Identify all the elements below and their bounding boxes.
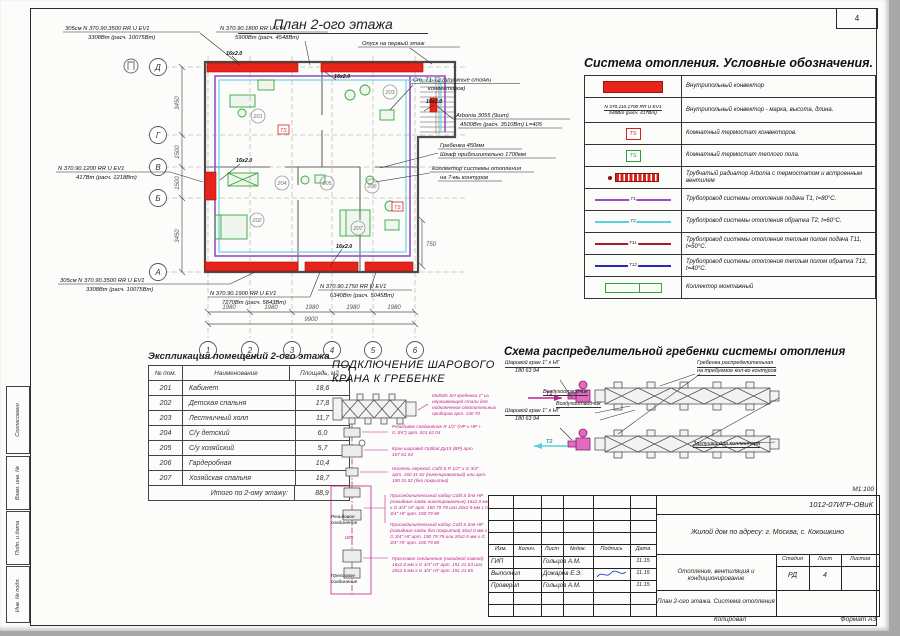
table-row: 204С/у детский6,0 [149, 426, 349, 441]
legend-desc: Трубопровод системы отопления обратка Т2… [682, 211, 875, 232]
legend-row: Т11 Трубопровод системы отопления теплым… [585, 233, 875, 255]
valve-note-7: Прессовое соединение (накидной гайкой) 1… [392, 556, 487, 574]
legend-desc: Внутрипольный конвектор - марка, высота,… [682, 98, 875, 122]
col-podpis: Подпись [593, 546, 630, 552]
cell-num: 203 [149, 411, 183, 425]
air-vent-bottom-text: Воздухоотводчик [556, 401, 601, 408]
col-name: Наименование [183, 366, 290, 380]
floor-plan-drawing: TS TS 201 203 204 205 206 202 207 Д Г В … [40, 20, 580, 362]
threaded-connection-label: Резьбовое соединение [331, 515, 373, 527]
margin-label-vzam: Взам. инв. № [15, 466, 21, 500]
valve-note-5: Присоединительный набор Cofit S для НР (… [390, 493, 490, 517]
copied-label: Копировал [690, 616, 770, 623]
scanned-drawing-sheet: { "page": {"sheet_number":"4","scale_not… [0, 0, 900, 636]
return-line-symbol: Т2 [595, 217, 671, 227]
sheet-number: 4 [855, 14, 859, 23]
ball-valve-top-line2: 180 63 94 [505, 368, 560, 375]
pipe-tag-2: 16х2.0 [334, 74, 350, 80]
pipe-tag-1: 16х2.0 [226, 51, 242, 57]
room-tag-206: 206 [366, 184, 377, 190]
cell-name: Кабинет [183, 381, 296, 395]
name-gip: Гольцов А.М. [543, 558, 581, 565]
room-schedule-title: Экспликация помещений 2-ого этажа [148, 351, 350, 362]
room-schedule-table: № пом. Наименование Площадь, м2 201Кабин… [148, 365, 350, 501]
ann-risers-1: Ст. Т1-Т2 (опускные стояки [413, 78, 492, 84]
cell-name: Детская спальня [183, 396, 296, 410]
ball-valve-bottom-line1: Шаровой кран 1" х НГ [505, 408, 560, 416]
stage-value: РД [776, 572, 809, 579]
ball-valve-top-line1: Шаровой кран 1" х НГ [505, 360, 560, 368]
thermostat-red-symbol: TS [626, 128, 641, 140]
convector-mark-line2: 548Вт (расч. 417Вт) [609, 111, 657, 116]
col-number: № пом. [149, 366, 183, 380]
manifold-label: Гребенка распределительная на требуемое … [697, 360, 776, 376]
valve-section-title: ПОДКЛЮЧЕНИЕ ШАРОВОГО КРАНА К ГРЕБЕНКЕ [332, 359, 495, 387]
dim-bot-3: 1980 [305, 305, 319, 311]
room-tag-202: 202 [251, 218, 262, 224]
table-row: 203Лестничный холл11,7 [149, 411, 349, 426]
table-row: 202Детская спальня17,8 [149, 396, 349, 411]
ann-conv-top-left-1: 305см N 370.90.3500 RR U EV1 [65, 26, 150, 32]
ann-collector-2: на 7-мь контуров [440, 175, 488, 181]
role-author: Выполнил [491, 570, 520, 577]
sheet-label: Лист [809, 556, 841, 562]
legend-row: Внутрипольный конвектор [585, 76, 875, 98]
col-list: Лист [541, 546, 563, 552]
date-author: 11.15 [630, 570, 656, 576]
legend-row: TS Комнатный термостат теплого пола. [585, 145, 875, 167]
legend-desc: Трубопровод системы отопления теплым пол… [682, 233, 875, 254]
line-tag: Т1 [629, 196, 636, 201]
signature [595, 569, 629, 580]
plug-label-text: Заглушка для коллектора [693, 441, 760, 448]
axis-6: 6 [413, 346, 418, 355]
legend-row: Коллектор монтажный [585, 277, 875, 299]
ts-badge-2: TS [394, 205, 401, 211]
supply-line-symbol: Т1 [595, 195, 671, 205]
cell-num: 205 [149, 441, 183, 455]
valve-note-3: Кран шаровой Optibal Ду15 (ВР) арт. 107 … [392, 446, 482, 458]
press-connection-label: Прессовое соединение [331, 574, 373, 586]
manifold-label-line2: на требуемое кол-во контуров [697, 368, 776, 376]
axis-5: 5 [371, 346, 376, 355]
ann-arbonia-1: Arbonia 3055 (9шт) [455, 113, 509, 119]
dim-left-1: 3450 [175, 96, 181, 110]
ts-badge-1: TS [280, 128, 287, 134]
plan-annotations: 305см N 370.90.3500 RR U EV1 3308Вт (рас… [58, 26, 543, 306]
floor-return-line-symbol: Т12 [595, 261, 671, 271]
valve-note-6: Присоединительный набор Cofit S для НР (… [390, 522, 490, 546]
legend-desc: Внутрипольный конвектор [682, 76, 875, 97]
or-label: или [345, 535, 353, 542]
convector-mark-symbol: N 370.110.1700 RR U EV1 548Вт (расч. 417… [585, 98, 682, 122]
table-row: 205С/у хозяйский5,7 [149, 441, 349, 456]
valve-note-2: Резьбовое соединение R 1/2" (НР х НР + G… [392, 424, 482, 436]
table-total-row: Итого по 2-ому этажу: 88,9 [149, 486, 349, 501]
valve-note-4: Ниппель переход. Cofit S R 1/2" х G 3/4"… [392, 466, 487, 484]
table-header-row: № пом. Наименование Площадь, м2 [149, 366, 349, 381]
axis-a: А [154, 268, 160, 277]
ann-conv-bottom-center-1: N 370.90.1900 RR U EV1 [210, 291, 276, 297]
scale-note: М1:100 [818, 486, 874, 493]
collector-symbol [605, 283, 662, 293]
ball-valve-bottom-label: Шаровой кран 1" х НГ 180 63 94 [505, 408, 560, 423]
legend-desc: Трубопровод системы отопления подача Т1,… [682, 189, 875, 210]
dim-left-4: 3450 [175, 229, 181, 243]
legend-row: Т2 Трубопровод системы отопления обратка… [585, 211, 875, 233]
total-label: Итого по 2-ому этажу: [149, 486, 295, 500]
col-kolich: Колич. [513, 546, 541, 552]
row-axis-bubbles: Д Г В Б А [150, 59, 167, 281]
cell-num: 202 [149, 396, 183, 410]
ann-conv-bottom-right-2: 6340Вт (расч. 5045Вт) [330, 293, 394, 299]
margin-label-podp: Подп. и дата [15, 521, 21, 555]
legend-desc: Трубопровод системы отопления теплым пол… [682, 255, 875, 276]
ann-conv-bottom-center-2: 7270Вт (расч. 5843Вт) [222, 300, 286, 306]
room-tags: 201 203 204 205 206 202 207 [250, 85, 397, 235]
col-ndok: №док. [563, 546, 593, 552]
cell-num: 201 [149, 381, 183, 395]
stage-label: Стадия [776, 556, 809, 562]
date-gip: 11.15 [630, 558, 656, 564]
legend: Система отопления. Условные обозначения.… [584, 56, 876, 299]
t2-tag: Т2 [546, 439, 552, 445]
room-tag-201: 201 [252, 114, 262, 120]
room-schedule: Экспликация помещений 2-ого этажа № пом.… [148, 351, 350, 501]
legend-row: N 370.110.1700 RR U EV1 548Вт (расч. 417… [585, 98, 875, 123]
cell-name: С/у хозяйский [183, 441, 296, 455]
legend-row: Т12 Трубопровод системы отопления теплым… [585, 255, 875, 277]
air-vent-top-label: Воздухоотводчик [543, 389, 588, 396]
scheme-title: Схема распределительной гребенки системы… [504, 346, 845, 358]
dim-total: 9900 [304, 317, 318, 323]
section-name: Отопление, вентиляция и кондиционировани… [658, 568, 774, 582]
table-row: 207Хозяйская спальня18,7 [149, 471, 349, 486]
ann-comb-2: Шкаф приблизительно 1700мм [440, 152, 526, 158]
dim-bot-5: 1980 [387, 305, 401, 311]
axis-b: Б [155, 194, 160, 203]
margin-label-inv: Инв. № подл. [15, 577, 21, 611]
legend-desc: Комнатный термостат конвекторов. [682, 123, 875, 144]
walls [205, 62, 455, 272]
role-gip: ГИП [491, 558, 503, 565]
table-row: 206Гардеробная10,4 [149, 456, 349, 471]
cell-name: Гардеробная [183, 456, 296, 470]
pipe-tag-5: 16х2.0 [336, 244, 352, 250]
line-tag: Т11 [628, 240, 638, 245]
dim-right: 750 [426, 242, 437, 248]
axis-v: В [155, 163, 161, 172]
legend-row: TS Комнатный термостат конвекторов. [585, 123, 875, 145]
cell-num: 204 [149, 426, 183, 440]
ann-collector-1: Коллектор системы отопления [432, 166, 521, 172]
fitting-chain [342, 428, 365, 578]
axis-g: Г [156, 131, 161, 140]
ts-text: TS [629, 131, 636, 137]
valve-title-line2: КРАНА К ГРЕБЕНКЕ [332, 373, 495, 387]
pipe-tag-4: 16х2.0 [426, 99, 442, 105]
dim-left-3: 1500 [175, 176, 181, 190]
title-block: Изм. Колич. Лист №док. Подпись Дата ГИП … [488, 495, 880, 617]
ann-conv-bottom-left-2: 3308Вт (расч. 10075Вт) [86, 287, 153, 293]
legend-desc: Комнатный термостат теплого пола. [682, 145, 875, 166]
ann-conv-top-center-2: 5900Вт (расч. 4548Вт) [235, 35, 299, 41]
room-tag-203: 203 [384, 90, 395, 96]
ann-conv-left-2: 417Вт (расч. 1218Вт) [76, 175, 137, 181]
drawing-sheet-title: План 2-ого этажа. Система отопления [656, 598, 776, 605]
ball-valve-bottom-line2: 180 63 94 [505, 416, 560, 423]
format-label: Формат А3 [818, 616, 876, 623]
cell-name: Лестничный холл [183, 411, 296, 425]
margin-box-vzam: Взам. инв. № [6, 456, 30, 510]
margin-label-agreed: Согласовано [15, 403, 21, 437]
legend-row: Трубчатый радиатор Arbonia с термостатом… [585, 167, 875, 189]
role-checker: Проверил [491, 582, 519, 589]
margin-box-agreed: Согласовано [6, 386, 30, 454]
cell-name: С/у детский [183, 426, 296, 440]
grid-lines [148, 56, 468, 338]
valve-title-line1: ПОДКЛЮЧЕНИЕ ШАРОВОГО [332, 359, 495, 373]
margin-box-podp: Подп. и дата [6, 511, 30, 565]
valve-note-1: Multidis SH гребенка 1" из нержавеющей с… [432, 393, 504, 417]
room-tag-207: 207 [352, 226, 363, 232]
pipe-tag-3: 16х2.0 [236, 158, 252, 164]
sheet-value: 4 [809, 572, 841, 579]
date-checker: 11.15 [630, 582, 656, 588]
room-tag-204: 204 [276, 181, 286, 187]
dim-bot-4: 1980 [346, 305, 360, 311]
manifold-label-line1: Гребенка распределительная [697, 360, 776, 368]
line-tag: Т12 [628, 262, 638, 267]
supply-manifold [595, 382, 779, 410]
air-vent-bottom-label: Воздухоотводчик [556, 401, 601, 408]
thermostat-green-symbol: TS [626, 150, 641, 162]
ts-text: TS [629, 153, 636, 159]
legend-desc: Трубчатый радиатор Arbonia с термостатом… [682, 167, 875, 188]
ann-conv-bottom-right-1: N 370.90.1750 RR U EV1 [320, 284, 386, 290]
red-bar-symbol [603, 81, 663, 93]
sheets-label: Листов [841, 556, 879, 562]
floor-supply-line-symbol: Т11 [595, 239, 671, 249]
manifold-assembly [333, 394, 416, 424]
axis-d: Д [154, 63, 161, 72]
plug-label: Заглушка для коллектора [693, 441, 760, 448]
col-izm: Изм. [489, 546, 513, 552]
radiator-symbol [608, 173, 659, 182]
plan-title: План 2-ого этажа [238, 16, 428, 34]
legend-title: Система отопления. Условные обозначения. [584, 56, 876, 70]
ann-conv-bottom-left-1: 305см N 370.90.3500 RR U EV1 [60, 278, 145, 284]
ann-comb-1: Гребенка 450мм [440, 143, 484, 149]
ann-conv-top-left-2: 3308Вт (расч. 10075Вт) [88, 35, 155, 41]
name-checker: Гольцов А.М. [543, 582, 581, 589]
margin-box-inv: Инв. № подл. [6, 566, 30, 623]
legend-desc: Коллектор монтажный [682, 277, 875, 298]
table-row: 201Кабинет18,6 [149, 381, 349, 396]
sheet-number-box: 4 [836, 8, 878, 29]
legend-table: Внутрипольный конвектор N 370.110.1700 R… [584, 75, 876, 299]
line-tag: Т2 [629, 218, 636, 223]
document-number: 1012-07ИГР-ОВиК [689, 500, 873, 509]
object-name: Жилой дом по адресу: г. Москва, с. Кокош… [656, 529, 879, 536]
label-underlines [56, 32, 570, 297]
cell-num: 207 [149, 471, 183, 485]
vent-shaft-icon [124, 59, 138, 73]
name-author: Дожарев Е.Э. [543, 570, 582, 577]
col-data: Дата [630, 546, 656, 552]
cell-name: Хозяйская спальня [183, 471, 296, 485]
ann-conv-left-1: N 370.90.1200 RR U EV1 [58, 166, 124, 172]
legend-row: Т1 Трубопровод системы отопления подача … [585, 189, 875, 211]
room-tag-205: 205 [321, 181, 332, 187]
ann-arbonia-2: 4500Вт (расч. 3510Вт) L=405 [460, 122, 543, 128]
ann-drop-to-first-floor: Опуск на первый этаж [362, 40, 425, 47]
ann-risers-2: конвекторов) [428, 86, 466, 92]
dim-left-2: 1500 [175, 145, 181, 159]
air-vent-top-text: Воздухоотводчик [543, 389, 588, 396]
cell-num: 206 [149, 456, 183, 470]
ball-valve-top-label: Шаровой кран 1" х НГ 180 63 94 [505, 360, 560, 375]
